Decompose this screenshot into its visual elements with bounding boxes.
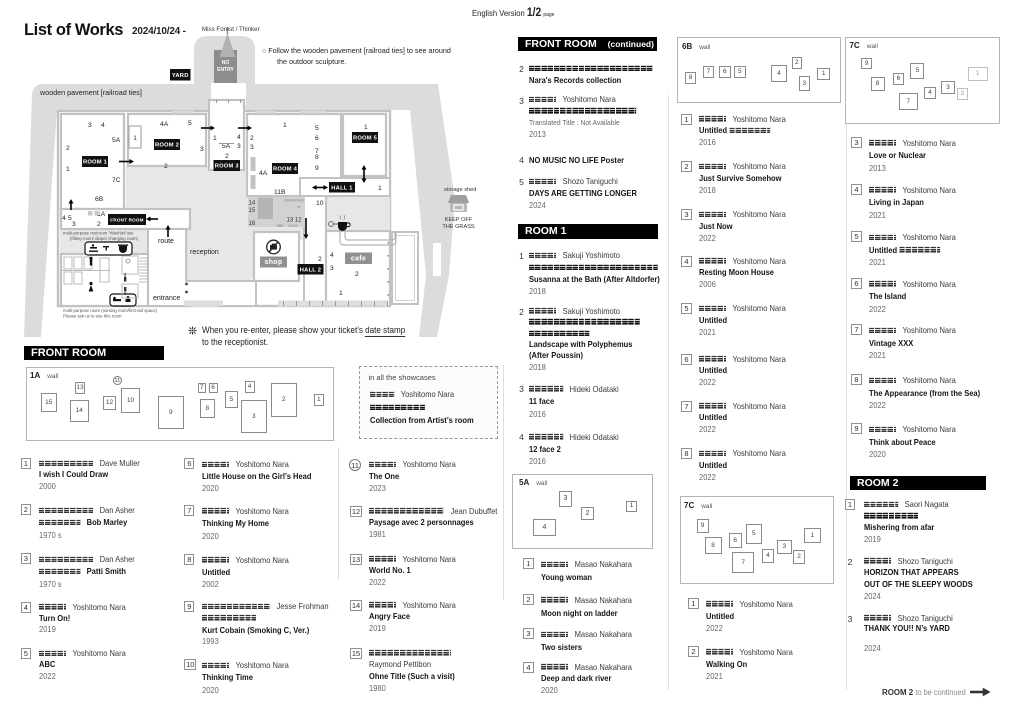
svg-text:5A: 5A (112, 137, 121, 144)
svg-text:route: route (158, 238, 174, 245)
svg-text:9: 9 (315, 165, 319, 172)
svg-text:4: 4 (62, 215, 66, 222)
svg-text:ROOM 1: ROOM 1 (83, 160, 108, 166)
svg-text:3: 3 (72, 221, 76, 228)
svg-text:2: 2 (318, 256, 322, 263)
svg-text:1: 1 (133, 135, 137, 142)
svg-text:○ Follow the wooden pavement [: ○ Follow the wooden pavement [railroad t… (262, 46, 451, 55)
svg-text:YARD: YARD (172, 73, 189, 79)
svg-text:HALL 1: HALL 1 (331, 185, 353, 191)
svg-text:15: 15 (249, 208, 256, 214)
svg-text:2: 2 (355, 271, 359, 278)
svg-text:8: 8 (315, 154, 319, 161)
svg-text:Miss Forest / Thinker: Miss Forest / Thinker (202, 26, 260, 33)
svg-text:Please ask us to use this room: Please ask us to use this room (63, 314, 122, 319)
svg-text:THE GRASS: THE GRASS (442, 224, 475, 230)
svg-text:ROOM 4: ROOM 4 (273, 167, 298, 173)
svg-text:1: 1 (213, 135, 217, 142)
svg-text:storage shed: storage shed (444, 187, 476, 193)
svg-text:shop: shop (265, 259, 283, 266)
svg-text:KEEP OFF: KEEP OFF (445, 217, 473, 223)
svg-text:ENTRY: ENTRY (217, 67, 234, 73)
svg-text:10: 10 (316, 200, 324, 207)
svg-text:ROOM 3: ROOM 3 (215, 164, 240, 170)
svg-text:1: 1 (66, 166, 70, 173)
svg-text:1: 1 (283, 122, 287, 129)
svg-text:3: 3 (237, 143, 241, 150)
svg-text:1: 1 (339, 290, 343, 297)
svg-text:3: 3 (200, 146, 204, 153)
svg-text:NO: NO (222, 60, 230, 66)
svg-text:2: 2 (66, 145, 70, 152)
svg-text:the outdoor sculpture.: the outdoor sculpture. (277, 57, 347, 66)
svg-text:7C: 7C (112, 177, 121, 184)
svg-text:5A: 5A (222, 143, 231, 150)
svg-text:wooden pavement [railroad ties: wooden pavement [railroad ties] (39, 88, 142, 97)
svg-text:3: 3 (330, 265, 334, 272)
svg-text:4A: 4A (259, 170, 268, 177)
svg-text:2: 2 (97, 221, 101, 228)
svg-text:11B: 11B (274, 189, 286, 196)
svg-text:3: 3 (88, 122, 92, 129)
svg-text:HALL 2: HALL 2 (300, 267, 321, 273)
svg-text:13 12: 13 12 (287, 218, 303, 224)
svg-text:4: 4 (101, 122, 105, 129)
svg-text:ROOM 5: ROOM 5 (353, 136, 378, 142)
svg-text:FRONT ROOM: FRONT ROOM (110, 218, 143, 223)
svg-text:multi-purpose room (nursing ro: multi-purpose room (nursing room/first-a… (63, 308, 158, 313)
svg-text:5: 5 (315, 125, 319, 132)
svg-text:6: 6 (315, 135, 319, 142)
svg-text:3: 3 (250, 144, 254, 151)
svg-text:1: 1 (378, 185, 382, 192)
svg-text:2: 2 (250, 135, 254, 142)
svg-text:(fitting room/ diaper changing: (fitting room/ diaper changing room) (70, 236, 139, 241)
svg-text:entrance: entrance (153, 295, 180, 302)
svg-text:14: 14 (249, 201, 256, 207)
svg-text:4A: 4A (160, 121, 169, 128)
svg-text:cafe: cafe (351, 255, 366, 262)
svg-text:ROOM 2: ROOM 2 (155, 143, 179, 149)
svg-text:5: 5 (188, 120, 192, 127)
svg-text:6B: 6B (95, 196, 104, 203)
svg-text:16: 16 (249, 221, 256, 227)
svg-text:reception: reception (190, 249, 219, 256)
svg-text:4: 4 (330, 252, 334, 259)
svg-text:2: 2 (164, 163, 168, 170)
svg-text:2: 2 (225, 153, 229, 160)
svg-text:1: 1 (364, 124, 368, 131)
svg-text:multi-purpose restroom “Washle: multi-purpose restroom “Washlet”use (63, 231, 134, 236)
svg-text:4: 4 (237, 134, 241, 141)
